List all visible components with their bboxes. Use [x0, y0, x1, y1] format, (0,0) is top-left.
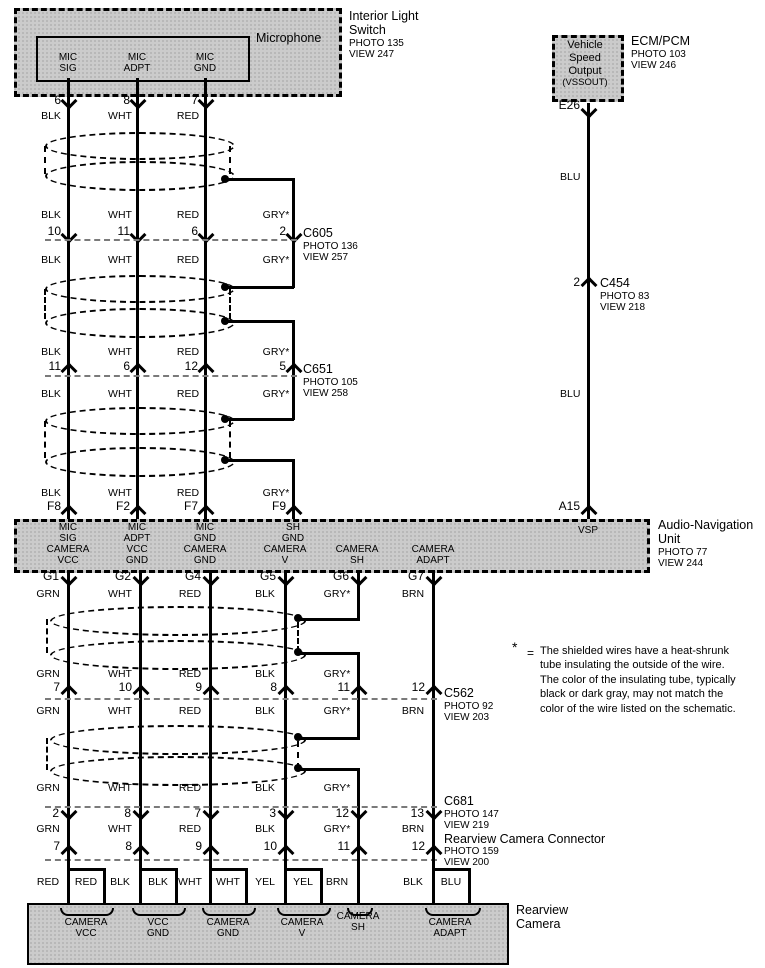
pin-number: G1 — [0, 570, 59, 583]
photo-ref: PHOTO 105 — [303, 377, 358, 388]
shield-side — [229, 289, 231, 319]
junction-dot — [221, 317, 229, 325]
wire — [210, 868, 248, 871]
wire-color-label: RED — [143, 255, 233, 267]
component-title: Camera — [516, 917, 560, 931]
shield-ellipse — [50, 606, 306, 636]
wire — [433, 868, 471, 871]
pin-number: 6 — [60, 360, 130, 373]
pin-number: G6 — [279, 570, 349, 583]
wire-color-label: BRN — [368, 706, 458, 718]
component-title: Microphone — [256, 31, 321, 45]
shield-ellipse — [50, 640, 306, 670]
footnote-line: color of the wire listed on the schemati… — [540, 703, 736, 715]
photo-ref: PHOTO 103 — [631, 49, 686, 60]
photo-ref: PHOTO 147 — [444, 809, 499, 820]
shield-side — [46, 738, 48, 770]
wire-color-label: BLU — [560, 389, 580, 401]
photo-ref: PHOTO 77 — [658, 547, 707, 558]
photo-ref: PHOTO 135 — [349, 38, 404, 49]
wire-color-label: RED — [143, 488, 233, 500]
pin-number: 8 — [61, 807, 131, 820]
terminal-label: SH GND — [248, 522, 338, 544]
shield-side — [44, 146, 46, 174]
component-title: Vehicle — [540, 39, 630, 51]
shield-ellipse — [45, 132, 235, 160]
component-title: Switch — [349, 23, 386, 37]
footnote-asterisk: * — [512, 640, 517, 656]
terminal-brace — [425, 908, 481, 916]
junction-dot — [221, 283, 229, 291]
wire — [357, 570, 360, 620]
pin-number: 2 — [0, 807, 59, 820]
terminal-label: MIC GND — [160, 522, 250, 544]
wire-color-label: BRN — [292, 877, 382, 889]
wire-color-label: RED — [143, 210, 233, 222]
shield-ellipse — [50, 725, 306, 755]
photo-ref: PHOTO 159 — [444, 846, 499, 857]
pin-number: 11 — [280, 840, 350, 853]
connector-line — [45, 859, 437, 861]
pin-number: 6 — [128, 225, 198, 238]
pin-number: 8 — [62, 840, 132, 853]
pin-number: 12 — [355, 681, 425, 694]
component-title: ECM/PCM — [631, 34, 690, 48]
component-title: Interior Light — [349, 9, 418, 23]
shield-ellipse — [45, 275, 235, 303]
terminal-label: CAMERA ADAPT — [405, 917, 495, 939]
wire-color-label: RED — [143, 347, 233, 359]
pin-number: 7 — [0, 840, 60, 853]
wire — [226, 418, 294, 421]
pin-number: 8 — [60, 94, 130, 107]
connector-line — [45, 239, 297, 241]
shield-side — [229, 421, 231, 458]
wire — [300, 618, 360, 621]
junction-dot — [221, 415, 229, 423]
pin-number: 11 — [0, 360, 61, 373]
pin-number: G5 — [206, 570, 276, 583]
wire — [140, 868, 178, 871]
terminal-brace — [60, 908, 114, 916]
pin-arrow-up-icon — [580, 276, 597, 293]
pin-number: F2 — [60, 500, 130, 513]
pin-number: 7 — [128, 94, 198, 107]
wire — [300, 652, 360, 655]
component-title: (VSSOUT) — [540, 78, 630, 89]
wire — [226, 286, 294, 289]
component-title: Audio-Navigation — [658, 518, 753, 532]
wire-color-label: BLU — [406, 877, 496, 889]
terminal-label: CAMERA ADAPT — [388, 544, 478, 566]
shield-side — [297, 622, 299, 652]
wire-color-label: BRN — [368, 589, 458, 601]
pin-number: E26 — [510, 99, 580, 112]
footnote-line: The shielded wires have a heat-shrunk — [540, 645, 729, 657]
wire-color-label: GRY* — [231, 255, 321, 267]
connector-name: C681 — [444, 794, 474, 808]
pin-number: 12 — [128, 360, 198, 373]
shield-ellipse — [45, 407, 235, 435]
pin-number: 3 — [206, 807, 276, 820]
shield-ellipse — [45, 447, 235, 477]
pin-number: 2 — [216, 225, 286, 238]
pin-number: 5 — [216, 360, 286, 373]
pin-number: 11 — [280, 681, 350, 694]
connector-name: C454 — [600, 276, 630, 290]
connector-name: C562 — [444, 686, 474, 700]
pin-number: F9 — [216, 500, 286, 513]
photo-ref: PHOTO 83 — [600, 291, 649, 302]
pin-number: 2 — [510, 276, 580, 289]
shield-side — [297, 741, 299, 769]
shield-ellipse — [45, 161, 235, 191]
pin-number: G2 — [61, 570, 131, 583]
view-ref: VIEW 246 — [631, 60, 676, 71]
terminal-label: MIC GND — [160, 52, 250, 74]
component-title: Rearview — [516, 903, 568, 917]
connector-line — [45, 375, 297, 377]
wire — [300, 737, 360, 740]
pin-number: 12 — [279, 807, 349, 820]
pin-number: 12 — [355, 840, 425, 853]
wire-color-label: GRY* — [231, 488, 321, 500]
component-title: Output — [540, 65, 630, 77]
pin-number: G7 — [354, 570, 424, 583]
pin-number: A15 — [510, 500, 580, 513]
wire-color-label: RED — [143, 389, 233, 401]
junction-dot — [221, 456, 229, 464]
pin-number: F8 — [0, 500, 61, 513]
pin-number: 10 — [207, 840, 277, 853]
wire — [300, 768, 360, 771]
terminal-brace — [202, 908, 256, 916]
shield-side — [44, 421, 46, 458]
pin-number: F7 — [128, 500, 198, 513]
pin-number: 7 — [0, 681, 60, 694]
wire — [68, 868, 106, 871]
wiring-diagram: MicrophoneInterior LightSwitchPHOTO 135V… — [0, 0, 765, 968]
view-ref: VIEW 247 — [349, 49, 394, 60]
shield-side — [46, 619, 48, 653]
connector-name: C651 — [303, 362, 333, 376]
wire — [226, 178, 294, 181]
wire — [226, 459, 294, 462]
wire — [587, 103, 590, 519]
wire-color-label: GRY* — [231, 210, 321, 222]
connector-line — [45, 698, 437, 700]
view-ref: VIEW 200 — [444, 857, 489, 868]
connector-name: Rearview Camera Connector — [444, 832, 605, 846]
photo-ref: PHOTO 136 — [303, 241, 358, 252]
pin-number: 11 — [60, 225, 130, 238]
wire-color-label: GRY* — [231, 389, 321, 401]
footnote-line: tube insulating the outside of the wire. — [540, 659, 725, 671]
pin-number: 7 — [131, 807, 201, 820]
pin-number: 8 — [207, 681, 277, 694]
pin-number: 9 — [132, 840, 202, 853]
component-title: Speed — [540, 52, 630, 64]
wire — [285, 868, 323, 871]
wire-color-label: RED — [143, 111, 233, 123]
junction-dot — [221, 175, 229, 183]
wire-color-label: GRY* — [292, 669, 382, 681]
shield-ellipse — [45, 308, 235, 338]
wire-color-label: BLU — [560, 172, 580, 184]
terminal-label: VSP — [543, 525, 633, 536]
pin-number: 13 — [354, 807, 424, 820]
footnote-equals: = — [527, 647, 534, 660]
wire-color-label: GRY* — [231, 347, 321, 359]
component-title: Unit — [658, 532, 680, 546]
pin-number: 10 — [0, 225, 61, 238]
footnote-line: black or dark gray, may not match the — [540, 688, 723, 700]
wire-color-label: GRY* — [292, 783, 382, 795]
connector-name: C605 — [303, 226, 333, 240]
pin-number: G4 — [131, 570, 201, 583]
wire — [226, 320, 294, 323]
view-ref: VIEW 218 — [600, 302, 645, 313]
terminal-label: CAMERA GND — [160, 544, 250, 566]
pin-number: 10 — [62, 681, 132, 694]
shield-side — [44, 289, 46, 319]
view-ref: VIEW 244 — [658, 558, 703, 569]
shield-side — [229, 146, 231, 174]
terminal-label: CAMERA SH — [313, 911, 403, 933]
footnote-line: The color of the insulating tube, typica… — [540, 674, 736, 686]
pin-number: 6 — [0, 94, 61, 107]
pin-number: 9 — [132, 681, 202, 694]
terminal-brace — [132, 908, 186, 916]
